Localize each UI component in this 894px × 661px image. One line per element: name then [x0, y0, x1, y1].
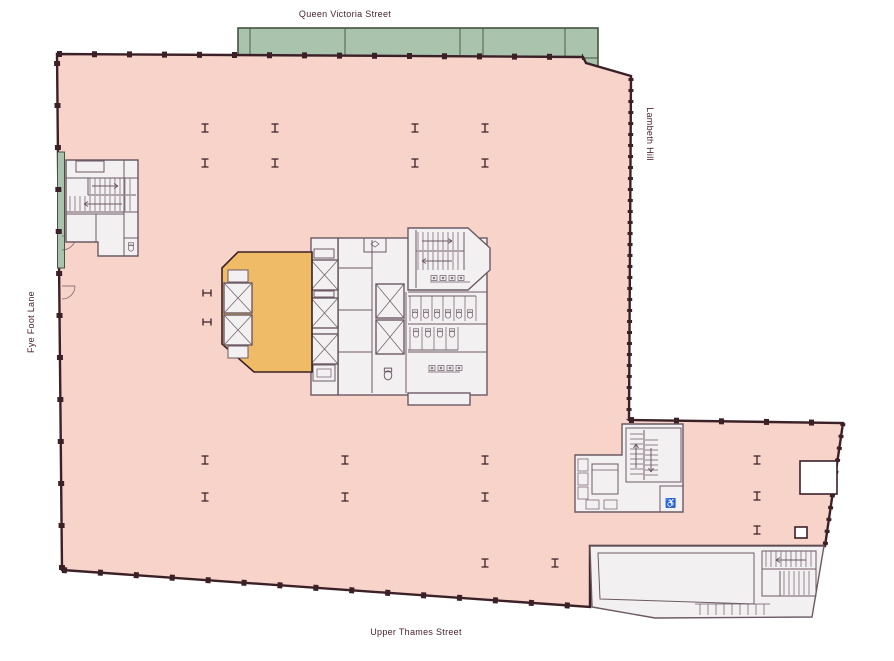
floor-plan-canvas: ♿ [0, 0, 894, 661]
floor-plan: ♿ Queen Victoria Street Upper Thames Str… [0, 0, 894, 661]
lift-icon [224, 315, 252, 345]
facade-recess [800, 461, 837, 494]
lift-icon [311, 260, 338, 290]
street-label-left: Fye Foot Lane [26, 291, 36, 353]
lower-annex [590, 546, 824, 618]
lift-icon [311, 298, 338, 328]
lift-lobby-highlight [222, 252, 312, 372]
stair-core-northwest [66, 160, 138, 256]
walkway-fye-foot-lane [58, 152, 65, 268]
street-label-bottom: Upper Thames Street [370, 627, 462, 637]
facade-recess-small [795, 527, 807, 538]
street-label-right: Lambeth Hill [645, 107, 655, 161]
accessible-wc-icon: ♿ [665, 497, 676, 508]
central-core [311, 228, 490, 405]
street-label-top: Queen Victoria Street [299, 9, 391, 19]
lift-bank-east [311, 238, 338, 395]
lift-icon [224, 283, 252, 313]
lift-icon [311, 334, 338, 364]
